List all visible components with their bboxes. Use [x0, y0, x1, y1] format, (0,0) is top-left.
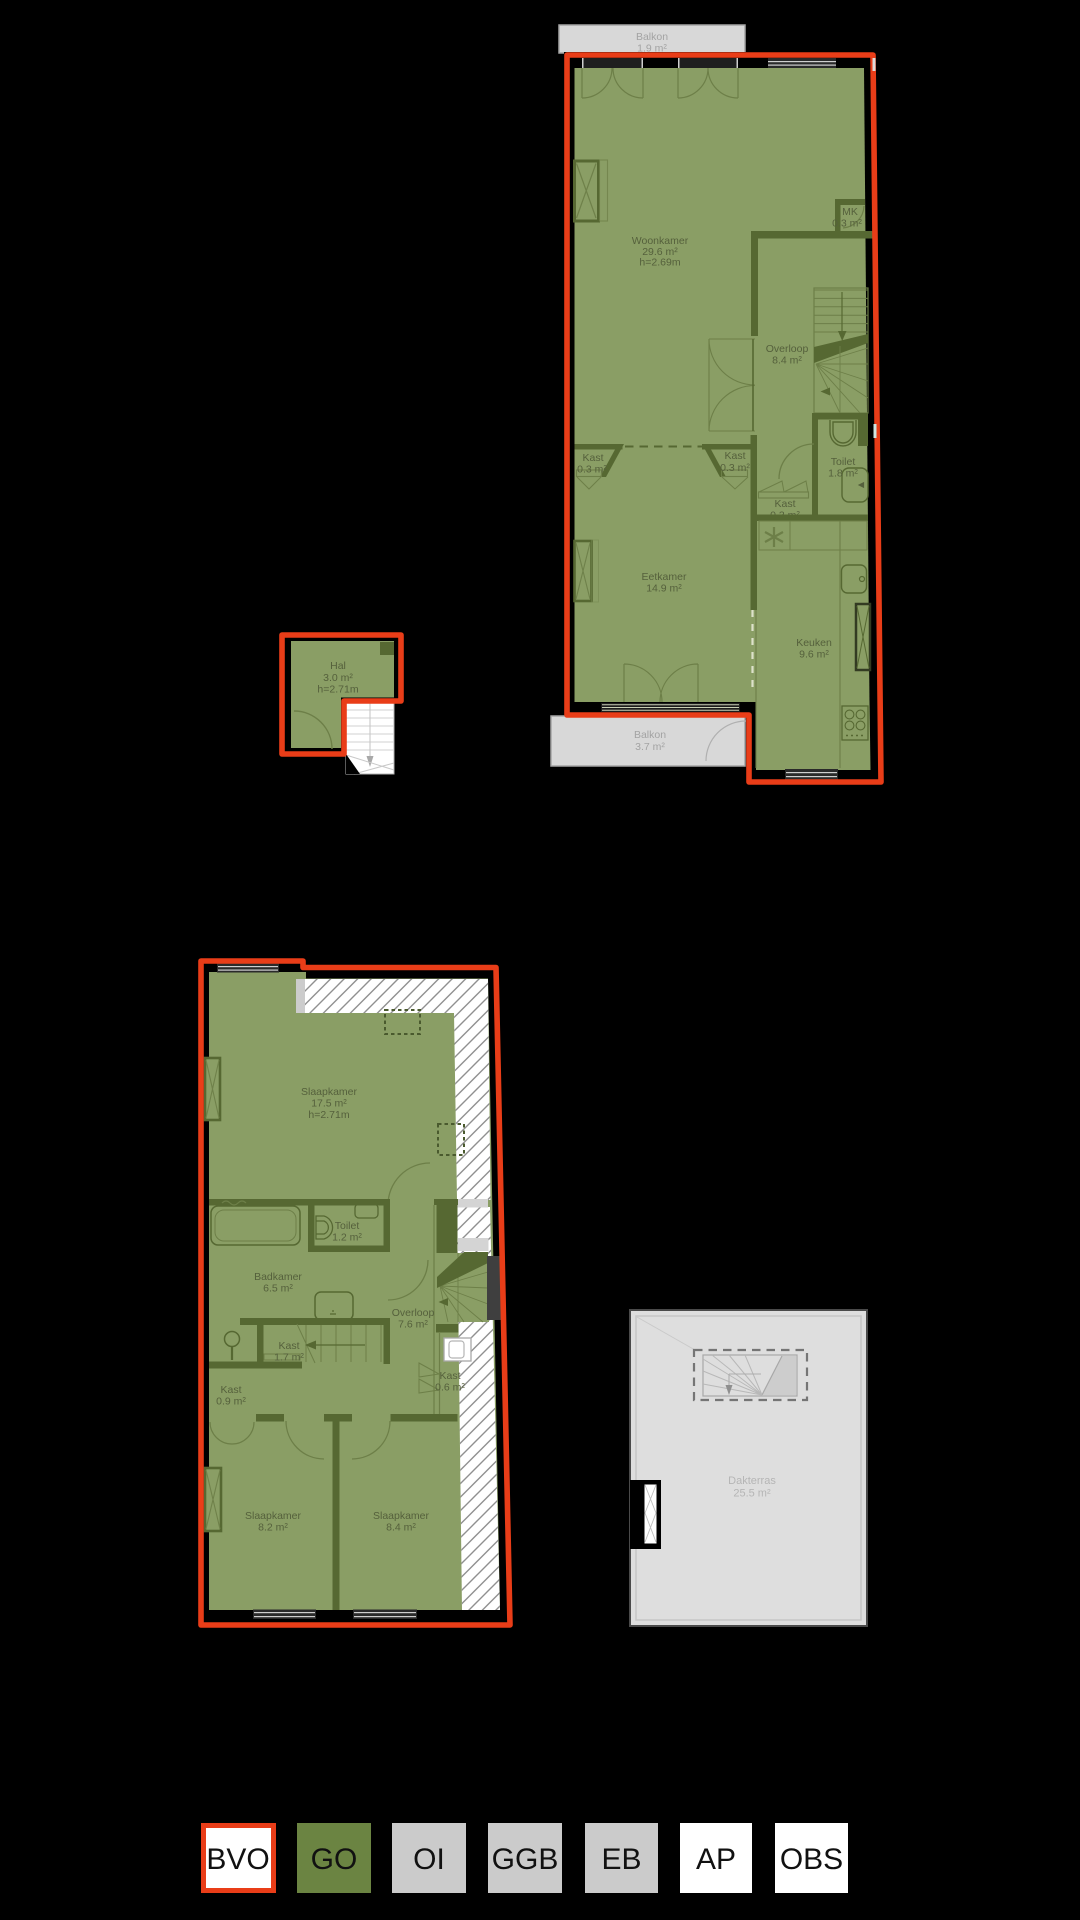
svg-text:EB: EB — [601, 1843, 641, 1876]
svg-text:Eetkamer: Eetkamer — [642, 571, 687, 583]
svg-text:AP: AP — [696, 1843, 736, 1876]
svg-text:◄: ◄ — [856, 479, 866, 491]
svg-text:Balkon: Balkon — [636, 31, 668, 43]
svg-text:8.2 m²: 8.2 m² — [258, 1522, 288, 1534]
svg-text:25.5 m²: 25.5 m² — [733, 1488, 771, 1500]
svg-text:Kast: Kast — [220, 1384, 241, 1396]
svg-text:OBS: OBS — [780, 1843, 843, 1876]
svg-text:0.9 m²: 0.9 m² — [216, 1396, 246, 1408]
svg-text:Slaapkamer: Slaapkamer — [245, 1510, 302, 1522]
svg-text:Kast: Kast — [582, 452, 603, 464]
svg-text:Badkamer: Badkamer — [254, 1271, 302, 1283]
svg-text:MK: MK — [842, 206, 858, 218]
svg-text:GGB: GGB — [492, 1843, 559, 1876]
svg-text:6.5 m²: 6.5 m² — [263, 1283, 293, 1295]
svg-text:9.6 m²: 9.6 m² — [799, 649, 829, 661]
svg-text:1.7 m²: 1.7 m² — [274, 1352, 304, 1364]
svg-text:Slaapkamer: Slaapkamer — [301, 1086, 358, 1098]
svg-text:Keuken: Keuken — [796, 637, 832, 649]
svg-text:GO: GO — [311, 1843, 358, 1876]
svg-text:h=2.71m: h=2.71m — [308, 1109, 349, 1121]
svg-text:17.5 m²: 17.5 m² — [311, 1098, 347, 1110]
svg-text:0.3 m²: 0.3 m² — [720, 462, 750, 474]
svg-text:0.3 m²: 0.3 m² — [577, 464, 607, 476]
svg-text:Kast: Kast — [724, 450, 745, 462]
svg-text:Slaapkamer: Slaapkamer — [373, 1510, 430, 1522]
svg-text:1.2 m²: 1.2 m² — [332, 1232, 362, 1244]
svg-text:8.4 m²: 8.4 m² — [772, 355, 802, 367]
svg-text:Kast: Kast — [278, 1340, 299, 1352]
svg-text:Overloop: Overloop — [392, 1307, 435, 1319]
svg-text:3.0 m²: 3.0 m² — [323, 672, 353, 684]
svg-text:7.6 m²: 7.6 m² — [398, 1319, 428, 1331]
svg-text:OI: OI — [413, 1843, 445, 1876]
svg-text:0.3 m²: 0.3 m² — [832, 218, 862, 230]
svg-text:Hal: Hal — [330, 660, 346, 672]
svg-text:Overloop: Overloop — [766, 343, 809, 355]
svg-text:Dakterras: Dakterras — [728, 1475, 776, 1487]
svg-text:1.8 m²: 1.8 m² — [828, 468, 858, 480]
svg-text:BVO: BVO — [206, 1843, 269, 1876]
svg-text:8.4 m²: 8.4 m² — [386, 1522, 416, 1534]
svg-text:Toilet: Toilet — [335, 1220, 360, 1232]
svg-text:Kast: Kast — [774, 498, 795, 510]
svg-text:14.9 m²: 14.9 m² — [646, 583, 682, 595]
svg-text:h=2.71m: h=2.71m — [317, 684, 358, 696]
svg-text:Kast: Kast — [439, 1370, 460, 1382]
svg-text:3.7 m²: 3.7 m² — [635, 741, 665, 753]
svg-text:Toilet: Toilet — [831, 456, 856, 468]
svg-text:Balkon: Balkon — [634, 729, 666, 741]
svg-text:0.6 m²: 0.6 m² — [435, 1382, 465, 1394]
svg-text:h=2.69m: h=2.69m — [639, 257, 680, 269]
